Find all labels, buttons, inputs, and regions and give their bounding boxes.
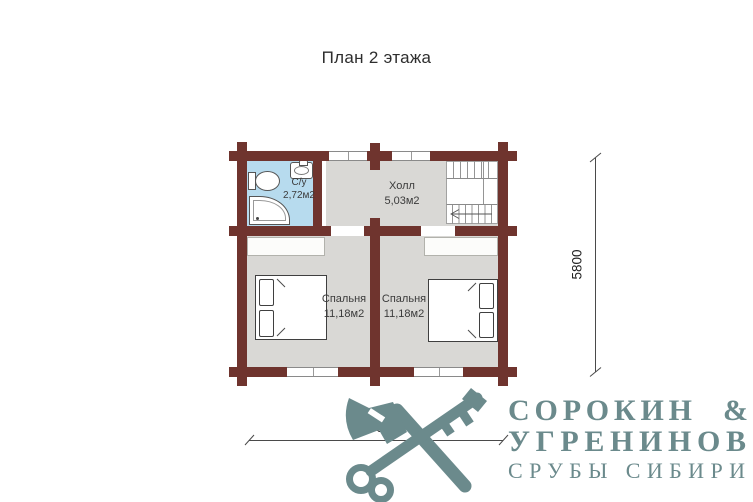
bed-left bbox=[255, 275, 327, 340]
logo-name-top: СОРОКИН bbox=[508, 394, 692, 427]
door-opening-left bbox=[331, 226, 364, 236]
room-area: 11,18м2 bbox=[382, 307, 426, 322]
window bbox=[414, 367, 463, 377]
closet-left bbox=[247, 237, 325, 256]
pillow bbox=[259, 310, 274, 337]
key-icon bbox=[350, 388, 488, 500]
door-opening-right bbox=[421, 226, 455, 236]
pillow bbox=[479, 312, 494, 338]
window bbox=[287, 367, 338, 377]
room-name: Спальня bbox=[382, 292, 426, 307]
dimension-vertical-label: 5800 bbox=[570, 245, 585, 285]
wall-log-stub-top bbox=[370, 143, 380, 170]
toilet-icon bbox=[255, 171, 280, 191]
window bbox=[392, 151, 430, 161]
room-label-hall: Холл 5,03м2 bbox=[384, 179, 419, 209]
logo-ampersand: & bbox=[723, 394, 748, 427]
room-area: 2,72м2 bbox=[283, 189, 315, 202]
room-area: 11,18м2 bbox=[322, 307, 366, 322]
room-name: С/у bbox=[283, 176, 315, 189]
wall-right bbox=[498, 142, 508, 386]
window bbox=[329, 151, 367, 161]
wall-bedroom-divider bbox=[370, 218, 380, 386]
room-name: Спальня bbox=[322, 292, 366, 307]
page-title: План 2 этажа bbox=[0, 48, 753, 68]
room-label-bathroom: С/у 2,72м2 bbox=[283, 176, 315, 202]
room-name: Холл bbox=[384, 179, 419, 194]
wall-left bbox=[237, 142, 247, 386]
floor-plan-page: План 2 этажа С/у 2,72м2 Холл 5,03м2 bbox=[0, 0, 753, 502]
dimension-horizontal-label: 6800 bbox=[350, 420, 402, 435]
logo-name-bottom: УГРЕНИНОВ bbox=[508, 425, 746, 458]
room-label-bedroom-right: Спальня 11,18м2 bbox=[382, 292, 426, 322]
axe-icon bbox=[346, 398, 465, 486]
logo-wordmark: СОРОКИН & УГРЕНИНОВ СРУБЫ СИБИРИ bbox=[508, 392, 753, 492]
pillow bbox=[479, 283, 494, 309]
logo-tagline: СРУБЫ СИБИРИ bbox=[508, 458, 746, 483]
bed-right bbox=[428, 279, 498, 342]
room-label-bedroom-left: Спальня 11,18м2 bbox=[322, 292, 366, 322]
pillow bbox=[259, 279, 274, 306]
closet-right bbox=[424, 237, 498, 256]
logo-emblem bbox=[341, 386, 513, 502]
room-area: 5,03м2 bbox=[384, 194, 419, 209]
